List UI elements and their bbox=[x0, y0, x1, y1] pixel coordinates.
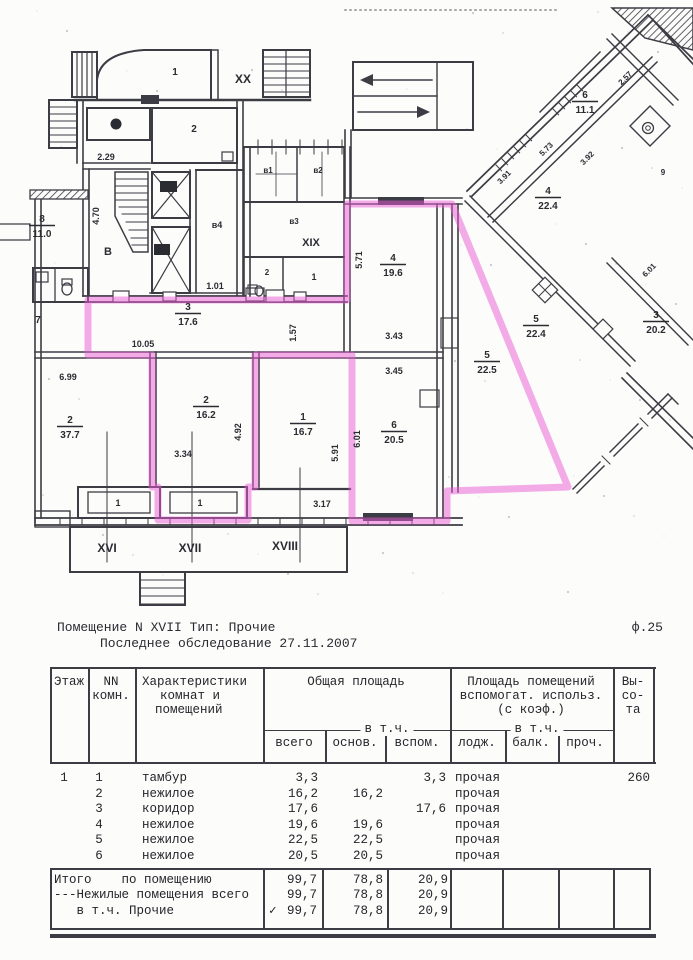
cell-aux-type: прочая bbox=[455, 834, 500, 847]
room-number-label: 3 bbox=[185, 302, 191, 313]
cell-area-total: 16,2 bbox=[288, 788, 318, 801]
cell-aux-type: прочая bbox=[455, 850, 500, 863]
col-subheader: вспом. bbox=[394, 737, 439, 750]
col-header-aux-area: вспомогат. использ. bbox=[460, 690, 603, 703]
room-number-label: 1 bbox=[300, 412, 306, 423]
totals-area-main: 78,8 bbox=[353, 889, 383, 902]
dimension-label: в3 bbox=[289, 217, 299, 226]
table-rule bbox=[50, 667, 656, 669]
table-rule bbox=[50, 762, 656, 764]
table-rule bbox=[50, 868, 52, 929]
dimension-label: 6.01 bbox=[352, 430, 362, 448]
room-number-label: 2 bbox=[203, 395, 209, 406]
section-label: XX bbox=[235, 72, 251, 86]
cell-room-no: 2 bbox=[95, 788, 103, 801]
room-number-label: 5 bbox=[484, 350, 490, 361]
room-number-label: 3 bbox=[653, 310, 659, 321]
dimension-label: 10.05 bbox=[132, 339, 155, 349]
cell-area-main: 19,6 bbox=[353, 819, 383, 832]
dimension-label: 1.01 bbox=[206, 281, 224, 291]
cell-area-total: 3,3 bbox=[295, 772, 318, 785]
dimension-label: в1 bbox=[263, 166, 273, 175]
cell-aux-type: прочая bbox=[455, 819, 500, 832]
table-rule bbox=[50, 928, 651, 930]
col-subheader: проч. bbox=[566, 737, 604, 750]
dimension-label: В bbox=[104, 246, 112, 258]
col-subheader: балк. bbox=[512, 737, 550, 750]
table-rule bbox=[135, 667, 137, 763]
table-rule bbox=[322, 868, 324, 929]
section-label: XVII bbox=[179, 541, 202, 555]
dimension-label: 8 bbox=[114, 122, 118, 129]
dimension-label: 3.34 bbox=[174, 449, 192, 459]
section-label: XIX bbox=[302, 237, 320, 249]
dimension-label: 2 bbox=[191, 124, 197, 135]
cell-area-total: 19,6 bbox=[288, 819, 318, 832]
table-rule bbox=[613, 868, 615, 929]
cell-room-name: нежилое bbox=[142, 819, 195, 832]
cell-room-no: 3 bbox=[95, 803, 103, 816]
dimension-label: 1 bbox=[115, 498, 120, 508]
premise-title: Помещение N XVII Тип: Прочие bbox=[57, 620, 275, 635]
cell-aux-type: прочая bbox=[455, 803, 500, 816]
cell-room-name: коридор bbox=[142, 803, 195, 816]
col-subheader: лодж. bbox=[458, 737, 496, 750]
room-area-label: 19.6 bbox=[383, 268, 403, 279]
dimension-label: 2.57 bbox=[617, 69, 635, 87]
room-number-label: 4 bbox=[390, 253, 396, 264]
cell-area-total: 17,6 bbox=[288, 803, 318, 816]
room-area-label: 20.5 bbox=[384, 435, 404, 446]
totals-label: Итого по помещению bbox=[54, 874, 212, 887]
table-rule bbox=[88, 667, 90, 763]
table-rule bbox=[50, 667, 52, 763]
dimension-label: 6.01 bbox=[641, 261, 659, 279]
col-header-characteristics: комнат и bbox=[160, 690, 220, 703]
table-rule bbox=[505, 730, 507, 763]
table-rule bbox=[263, 667, 265, 763]
table-rule bbox=[649, 868, 651, 929]
dimension-label: 3.92 bbox=[579, 149, 597, 167]
totals-area-main: 78,8 bbox=[353, 905, 383, 918]
floor-plan: 811.0317.6237.7216.2116.7620.5419.6522.5… bbox=[0, 0, 693, 614]
area-table: ЭтажNNкомн.Характеристикикомнат ипомещен… bbox=[50, 667, 656, 957]
dimension-label: в2 bbox=[313, 166, 323, 175]
dimension-label: 3.43 bbox=[385, 331, 403, 341]
col-header-total-area: Общая площадь bbox=[307, 676, 405, 689]
cell-area-aux: 3,3 bbox=[423, 772, 446, 785]
cell-area-aux: 17,6 bbox=[416, 803, 446, 816]
dimension-label: в6 bbox=[164, 184, 172, 191]
col-header-room-no: NN bbox=[103, 676, 118, 689]
table-rule bbox=[387, 868, 389, 929]
dimension-label: в5 bbox=[158, 247, 166, 254]
totals-area-aux: 20,9 bbox=[418, 889, 448, 902]
room-area-label: 16.7 bbox=[293, 427, 313, 438]
room-area-label: 22.4 bbox=[538, 201, 558, 212]
room-area-label: 20.2 bbox=[646, 325, 666, 336]
totals-label: ---Нежилые помещения всего bbox=[54, 889, 249, 902]
dimension-label: 5.91 bbox=[330, 444, 340, 462]
dimension-label: 6.99 bbox=[59, 372, 77, 382]
room-area-label: 37.7 bbox=[60, 430, 80, 441]
dimension-label: 1.57 bbox=[288, 324, 298, 342]
cell-area-total: 22,5 bbox=[288, 834, 318, 847]
cell-room-no: 5 bbox=[95, 834, 103, 847]
cell-aux-type: прочая bbox=[455, 788, 500, 801]
col-subheader: всего bbox=[275, 737, 313, 750]
room-number-label: 8 bbox=[39, 214, 45, 225]
cell-area-main: 16,2 bbox=[353, 788, 383, 801]
table-rule bbox=[50, 868, 651, 870]
dimension-label: 2 bbox=[265, 268, 270, 277]
cell-floor: 1 bbox=[60, 772, 68, 785]
room-area-label: 11.0 bbox=[33, 229, 52, 240]
dimension-label: 1 bbox=[197, 498, 202, 508]
cell-room-no: 6 bbox=[95, 850, 103, 863]
totals-area-aux: 20,9 bbox=[418, 874, 448, 887]
plan-walls bbox=[0, 8, 693, 605]
cell-room-name: нежилое bbox=[142, 834, 195, 847]
cell-room-name: нежилое bbox=[142, 850, 195, 863]
cell-area-main: 20,5 bbox=[353, 850, 383, 863]
col-header-height: Вы- bbox=[622, 676, 645, 689]
totals-area-aux: 20,9 bbox=[418, 905, 448, 918]
table-rule bbox=[450, 868, 452, 929]
col-header-height: та bbox=[625, 704, 640, 717]
totals-area-total: 99,7 bbox=[287, 874, 317, 887]
room-number-label: 2 bbox=[67, 415, 73, 426]
dimension-label: 4.92 bbox=[233, 423, 243, 441]
cell-room-name: нежилое bbox=[142, 788, 195, 801]
table-rule bbox=[263, 868, 265, 929]
cell-room-name: тамбур bbox=[142, 772, 187, 785]
section-label: XVI bbox=[97, 541, 116, 555]
col-subheader: основ. bbox=[332, 737, 377, 750]
section-label: XVIII bbox=[272, 539, 298, 553]
col-header-incl: в т.ч. bbox=[510, 723, 563, 736]
cell-aux-type: прочая bbox=[455, 772, 500, 785]
dimension-label: 3.17 bbox=[313, 499, 331, 509]
totals-checkmark: ✓ bbox=[269, 905, 277, 918]
table-rule bbox=[613, 667, 615, 763]
col-header-height: со- bbox=[622, 690, 645, 703]
scanned-document-page: { "doc": { "title_line1": "Помещение N X… bbox=[0, 0, 693, 960]
room-number-label: 6 bbox=[391, 420, 397, 431]
room-area-label: 17.6 bbox=[178, 317, 198, 328]
table-rule bbox=[450, 667, 452, 763]
cell-room-no: 4 bbox=[95, 819, 103, 832]
totals-area-total: 99,7 bbox=[287, 905, 317, 918]
dimension-label: 1 bbox=[311, 272, 316, 282]
cell-area-main: 22,5 bbox=[353, 834, 383, 847]
room-area-label: 22.4 bbox=[526, 329, 546, 340]
cell-height: 260 bbox=[627, 772, 650, 785]
col-header-incl: в т.ч. bbox=[360, 723, 413, 736]
col-header-floor: Этаж bbox=[54, 676, 84, 689]
totals-area-main: 78,8 bbox=[353, 874, 383, 887]
col-header-aux-area: Площадь помещений bbox=[467, 676, 595, 689]
table-rule bbox=[263, 730, 450, 731]
room-number-label: 5 bbox=[533, 314, 539, 325]
room-area-label: 16.2 bbox=[196, 410, 216, 421]
cell-area-total: 20,5 bbox=[288, 850, 318, 863]
dimension-label: 9 bbox=[661, 168, 666, 177]
totals-label: в т.ч. Прочие bbox=[54, 905, 174, 918]
table-rule bbox=[502, 868, 504, 929]
dimension-label: 3.45 bbox=[385, 366, 403, 376]
col-header-characteristics: помещений bbox=[155, 704, 223, 717]
dimension-label: 5.71 bbox=[354, 251, 364, 269]
room-number-label: 4 bbox=[545, 186, 551, 197]
room-area-label: 11.1 bbox=[576, 105, 595, 116]
dimension-label: 4.70 bbox=[91, 207, 101, 225]
dimension-label: 7 bbox=[35, 315, 41, 326]
table-rule bbox=[558, 868, 560, 929]
table-rule bbox=[50, 934, 656, 938]
survey-date-line: Последнее обследование 27.11.2007 bbox=[100, 636, 357, 651]
room-number-label: 6 bbox=[582, 90, 588, 101]
table-rule bbox=[325, 730, 327, 763]
dimension-label: в4 bbox=[212, 220, 223, 230]
dimension-label: 2.29 bbox=[97, 152, 115, 162]
dimension-label: 5.73 bbox=[538, 140, 556, 158]
cell-room-no: 1 bbox=[95, 772, 103, 785]
col-header-characteristics: Характеристики bbox=[142, 676, 247, 689]
dimension-label: 1 bbox=[172, 67, 178, 78]
totals-area-total: 99,7 bbox=[287, 889, 317, 902]
form-ref: ф.25 bbox=[632, 620, 663, 635]
col-header-aux-area: (с коэф.) bbox=[497, 704, 565, 717]
room-area-label: 22.5 bbox=[477, 365, 497, 376]
table-rule bbox=[653, 667, 655, 763]
col-header-room-no: комн. bbox=[92, 690, 130, 703]
